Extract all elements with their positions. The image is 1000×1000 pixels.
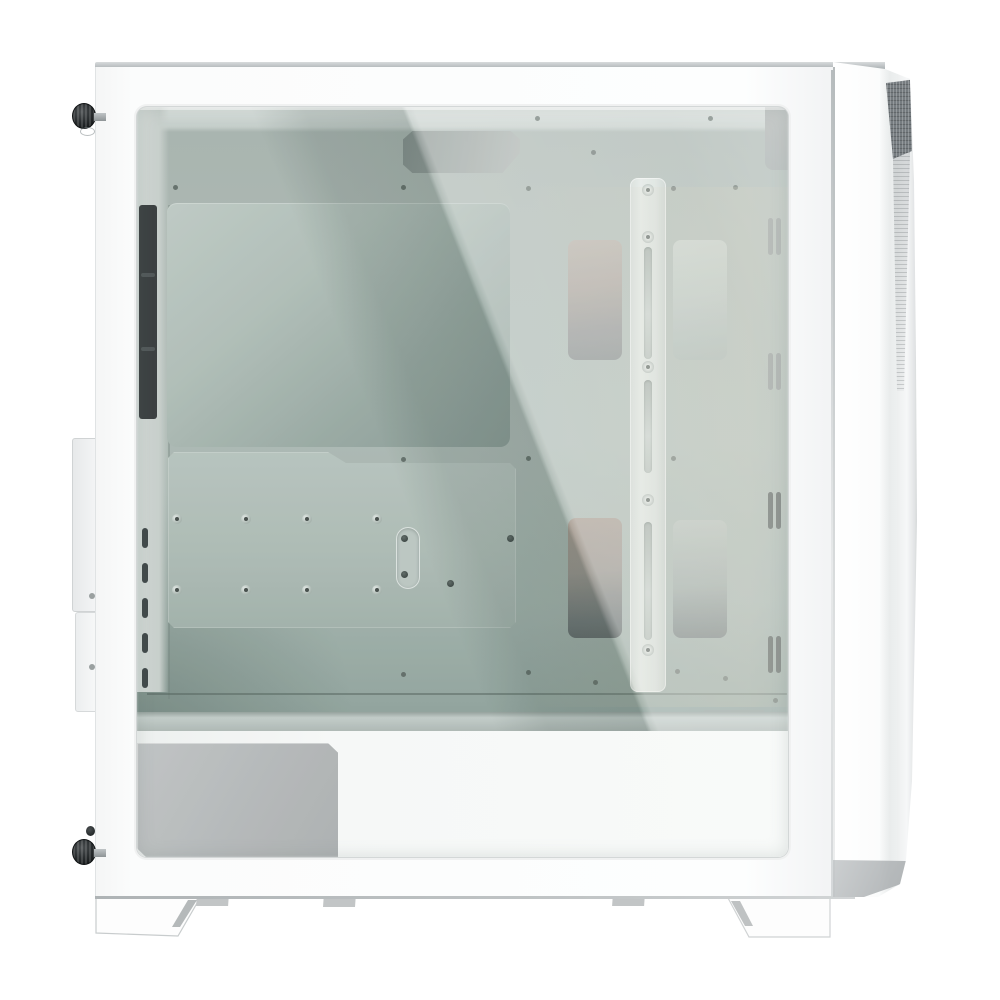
case-bottom-edge [95,896,855,899]
rear-screw-hole [86,826,95,836]
panel-seam [831,70,833,898]
front-panel [833,61,917,898]
thumbscrew-washer [80,127,95,136]
glass-tint [137,107,788,857]
front-panel-seam [833,67,835,897]
bottom-tab [323,899,356,907]
tempered-glass-panel [137,107,788,857]
pc-case-photo [0,0,1000,1000]
glass-glint [137,107,788,110]
thumbscrew-top[interactable] [72,103,96,129]
bottom-tab [612,898,645,906]
bottom-tab [196,898,229,906]
thumbscrew-bottom[interactable] [72,839,96,865]
